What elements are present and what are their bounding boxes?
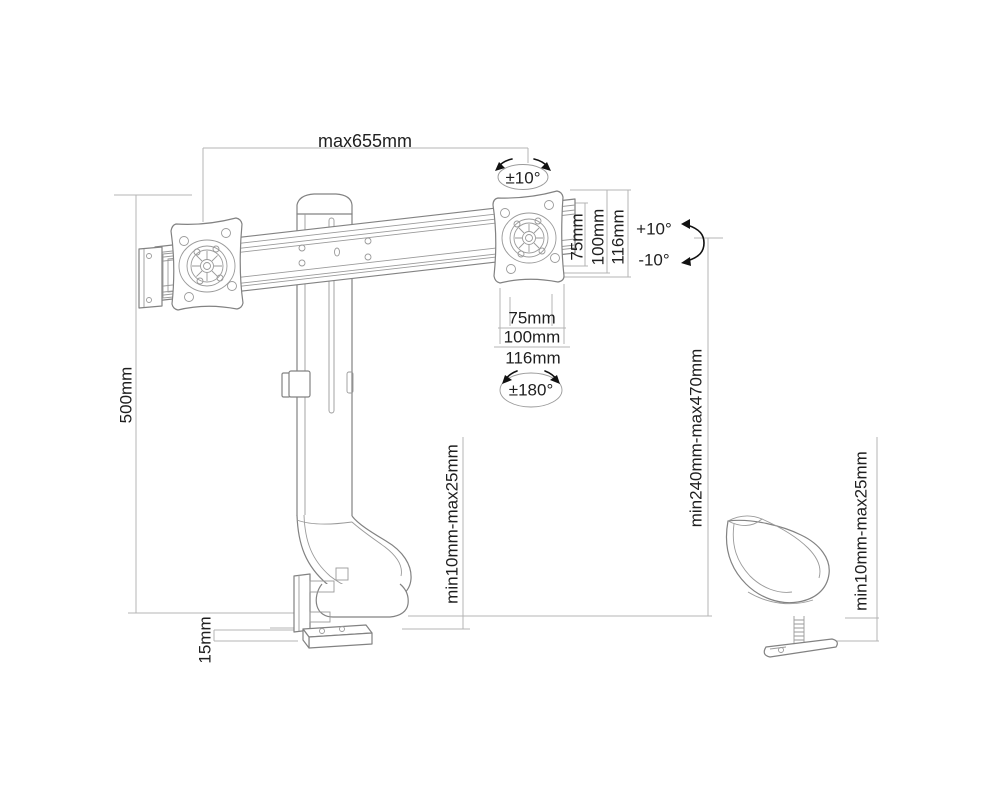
label-tilt-down: -10° (638, 251, 669, 270)
diagram-canvas: max655mm ±10° 75mm 100mm 116mm +10° -10°… (0, 0, 1000, 800)
vesa-plate-left (171, 218, 243, 310)
label-plate-width-100: 100mm (504, 328, 561, 347)
rotation-indicators (495, 159, 704, 407)
label-max-width: max655mm (318, 131, 412, 151)
clamp-bracket (294, 574, 310, 632)
screw-threads (794, 620, 804, 644)
column-cap (297, 194, 352, 214)
label-swivel-top: ±10° (505, 169, 540, 188)
plate-left-body (171, 218, 243, 310)
grommet-foot-body (726, 520, 829, 602)
tilt-arc (687, 225, 704, 261)
label-column-height: 500mm (117, 367, 136, 424)
label-plate-width-116: 116mm (505, 349, 560, 368)
label-plate-height-100: 100mm (589, 209, 608, 266)
screw-shaft (794, 616, 804, 646)
mount-dimension-drawing: max655mm ±10° 75mm 100mm 116mm +10° -10°… (0, 0, 1000, 800)
label-plate-height-116: 116mm (609, 209, 628, 264)
label-plate-width-75: 75mm (508, 309, 555, 328)
label-tilt-up: +10° (636, 220, 672, 239)
base-assembly (294, 515, 411, 648)
crossbar-end-cap (139, 247, 162, 308)
label-base-plate-thickness: 15mm (196, 616, 215, 663)
grommet-screw (794, 616, 804, 646)
label-rotation-range: ±180° (509, 381, 554, 400)
vesa-plate-right (493, 191, 564, 283)
label-plate-height-75: 75mm (568, 213, 587, 260)
tilt-arc-head-top (681, 219, 690, 229)
grommet-mount (726, 516, 837, 657)
label-height-adjust-range: min240mm-max470mm (687, 349, 706, 528)
tilt-arc-head-bottom (681, 257, 691, 266)
label-desk-clamp-range: min10mm-max25mm (443, 444, 462, 604)
label-grommet-clamp-range: min10mm-max25mm (852, 451, 871, 611)
column-clip-front (289, 371, 310, 397)
